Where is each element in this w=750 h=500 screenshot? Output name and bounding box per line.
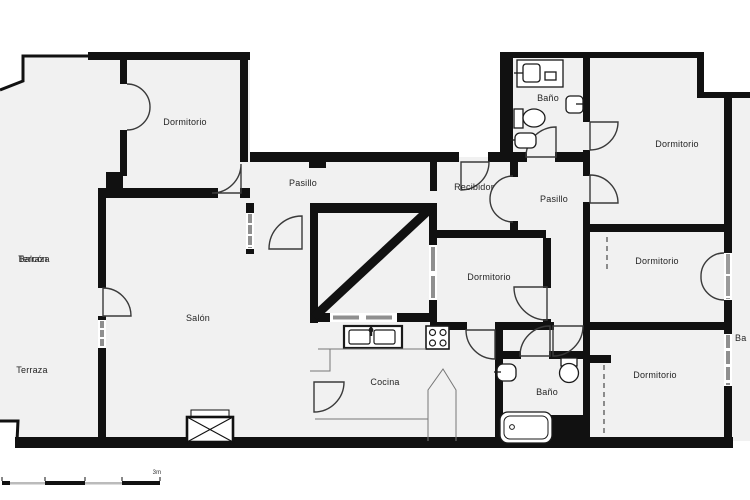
- room-label-pasillo-right: Pasillo: [540, 194, 568, 204]
- room-label-recibidor: Recibidor: [454, 182, 494, 192]
- floor-plan-stage: Dormitorio Pasillo Recibidor Baño Pasill…: [0, 0, 750, 500]
- room-label-salon: Salón: [186, 313, 210, 323]
- floor-plan-drawing: [0, 0, 750, 500]
- scale-bar: [2, 477, 160, 485]
- vanity-sink: [523, 64, 540, 82]
- room-label-dormitorio-bottom-right: Dormitorio: [633, 370, 677, 380]
- crossed-box-furniture: [187, 410, 233, 442]
- bidet: [515, 133, 536, 148]
- room-label-dormitorio-top-right: Dormitorio: [655, 139, 699, 149]
- room-label-cocina: Cocina: [370, 377, 399, 387]
- room-label-terraza-overprint: Terraza: [18, 254, 49, 264]
- room-label-dormitorio-top-left: Dormitorio: [163, 117, 207, 127]
- room-label-terraza: Terraza: [16, 365, 47, 375]
- soap-tray: [545, 72, 556, 80]
- room-label-pasillo-top: Pasillo: [289, 178, 317, 188]
- toilet-tank: [514, 109, 523, 128]
- room-label-dormitorio-mid-right: Dormitorio: [635, 256, 679, 266]
- scale-bar-label: 3m: [153, 470, 162, 476]
- room-label-balcon-right-clipped: Ba: [735, 333, 746, 343]
- stove-4-burner: [426, 326, 449, 349]
- toilet-bowl-bottom: [560, 364, 579, 383]
- kitchen-sink-right: [374, 330, 395, 344]
- room-label-bano-top: Baño: [537, 93, 559, 103]
- kitchen-sink-left: [349, 330, 370, 344]
- bathtub-drain: [510, 425, 515, 430]
- room-label-dormitorio-middle: Dormitorio: [467, 272, 511, 282]
- kitchen-fixtures: [344, 326, 449, 349]
- toilet-bowl: [523, 109, 545, 127]
- room-label-bano-bottom: Baño: [536, 387, 558, 397]
- kitchen-faucet-base: [369, 328, 374, 333]
